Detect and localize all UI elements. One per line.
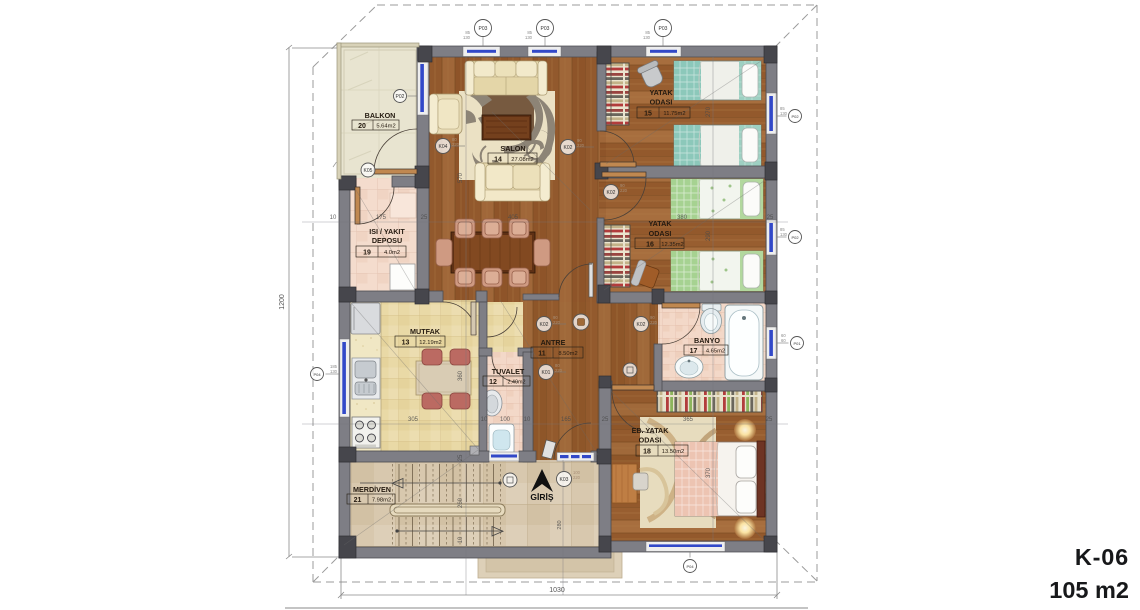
svg-text:7.98m2: 7.98m2	[372, 498, 391, 504]
svg-text:290: 290	[706, 230, 712, 241]
svg-text:P04: P04	[686, 564, 694, 569]
svg-text:4.65m2: 4.65m2	[706, 349, 725, 355]
svg-text:280: 280	[557, 520, 563, 529]
svg-text:5.64m2: 5.64m2	[376, 124, 395, 130]
svg-text:10: 10	[458, 536, 464, 543]
svg-text:P02: P02	[396, 94, 405, 100]
svg-text:25: 25	[767, 215, 774, 221]
svg-text:SALON: SALON	[500, 144, 525, 153]
svg-text:2.40m2: 2.40m2	[508, 380, 526, 386]
svg-text:12: 12	[489, 379, 497, 386]
svg-text:10: 10	[330, 215, 337, 221]
svg-text:16: 16	[646, 242, 654, 249]
svg-text:130: 130	[780, 111, 788, 116]
svg-text:10: 10	[481, 417, 488, 423]
svg-text:GİRİŞ: GİRİŞ	[530, 492, 553, 502]
svg-text:405: 405	[508, 215, 519, 221]
svg-text:P04: P04	[313, 372, 321, 377]
svg-text:K04: K04	[439, 144, 448, 150]
svg-text:18: 18	[643, 449, 651, 456]
svg-text:11.75m2: 11.75m2	[663, 111, 685, 117]
svg-text:K02: K02	[637, 322, 646, 328]
svg-text:25: 25	[766, 417, 773, 423]
svg-text:12.35m2: 12.35m2	[661, 242, 684, 248]
svg-text:14: 14	[494, 157, 502, 164]
svg-text:K05: K05	[364, 168, 373, 174]
svg-text:220: 220	[555, 368, 563, 373]
svg-text:P02: P02	[791, 235, 799, 240]
svg-text:ANTRE: ANTRE	[541, 338, 566, 347]
svg-text:220: 220	[553, 320, 561, 325]
svg-text:YATAK: YATAK	[648, 219, 672, 228]
svg-text:17: 17	[690, 348, 698, 355]
svg-text:EB. YATAK: EB. YATAK	[632, 426, 670, 435]
svg-text:130: 130	[525, 35, 533, 40]
svg-text:220: 220	[573, 475, 581, 480]
svg-text:220: 220	[577, 143, 585, 148]
svg-text:130: 130	[643, 35, 651, 40]
svg-text:P01: P01	[793, 341, 801, 346]
svg-text:25: 25	[458, 454, 464, 461]
svg-text:P03: P03	[541, 26, 550, 32]
svg-text:370: 370	[706, 467, 712, 478]
svg-text:175: 175	[376, 215, 387, 221]
svg-text:K-06: K-06	[1075, 544, 1129, 570]
svg-text:YATAK: YATAK	[649, 88, 673, 97]
svg-text:P03: P03	[659, 26, 668, 32]
svg-text:P03: P03	[479, 26, 488, 32]
svg-text:ODASI: ODASI	[649, 229, 672, 238]
svg-text:260: 260	[458, 497, 464, 508]
svg-text:BALKON: BALKON	[365, 111, 396, 120]
svg-text:13.50m2: 13.50m2	[662, 449, 685, 455]
svg-text:K03: K03	[560, 477, 569, 483]
svg-text:380: 380	[677, 215, 688, 221]
svg-text:MUTFAK: MUTFAK	[410, 327, 441, 336]
svg-text:130: 130	[780, 232, 788, 237]
svg-text:TUVALET: TUVALET	[492, 367, 525, 376]
svg-text:270: 270	[706, 106, 712, 117]
svg-text:305: 305	[408, 417, 419, 423]
svg-text:ODASI: ODASI	[639, 436, 662, 445]
svg-text:K01: K01	[542, 370, 551, 376]
svg-text:DEPOSU: DEPOSU	[372, 236, 402, 245]
svg-text:12.19m2: 12.19m2	[419, 340, 442, 346]
svg-text:K02: K02	[564, 145, 573, 151]
svg-text:21: 21	[354, 497, 362, 504]
svg-text:15: 15	[644, 111, 652, 118]
svg-text:220: 220	[650, 320, 658, 325]
svg-text:25: 25	[602, 417, 609, 423]
svg-text:8.50m2: 8.50m2	[558, 351, 577, 357]
svg-text:1200: 1200	[279, 294, 286, 310]
svg-text:100: 100	[500, 417, 511, 423]
svg-text:1030: 1030	[549, 587, 565, 594]
svg-text:MERDİVEN: MERDİVEN	[353, 485, 391, 494]
svg-text:570: 570	[458, 172, 464, 183]
svg-text:130: 130	[330, 369, 338, 374]
svg-text:K02: K02	[540, 322, 549, 328]
svg-text:220: 220	[620, 188, 628, 193]
svg-text:11: 11	[538, 351, 546, 358]
svg-text:60: 60	[781, 338, 786, 343]
svg-text:165: 165	[561, 417, 572, 423]
svg-text:BANYO: BANYO	[694, 336, 720, 345]
svg-text:K02: K02	[607, 190, 616, 196]
svg-text:105 m2: 105 m2	[1049, 577, 1129, 603]
svg-text:ISI / YAKIT: ISI / YAKIT	[369, 227, 405, 236]
svg-text:ODASI: ODASI	[650, 98, 673, 107]
svg-text:220: 220	[452, 142, 460, 147]
svg-text:P02: P02	[791, 114, 799, 119]
svg-text:130: 130	[463, 35, 471, 40]
svg-text:25: 25	[421, 215, 428, 221]
svg-text:4.0m2: 4.0m2	[384, 250, 400, 256]
svg-text:19: 19	[363, 250, 371, 257]
svg-text:365: 365	[683, 417, 694, 423]
svg-text:13: 13	[402, 340, 410, 347]
svg-text:20: 20	[358, 123, 366, 130]
svg-text:360: 360	[458, 370, 464, 381]
svg-text:27.08m2: 27.08m2	[511, 157, 534, 163]
svg-text:10: 10	[524, 417, 531, 423]
